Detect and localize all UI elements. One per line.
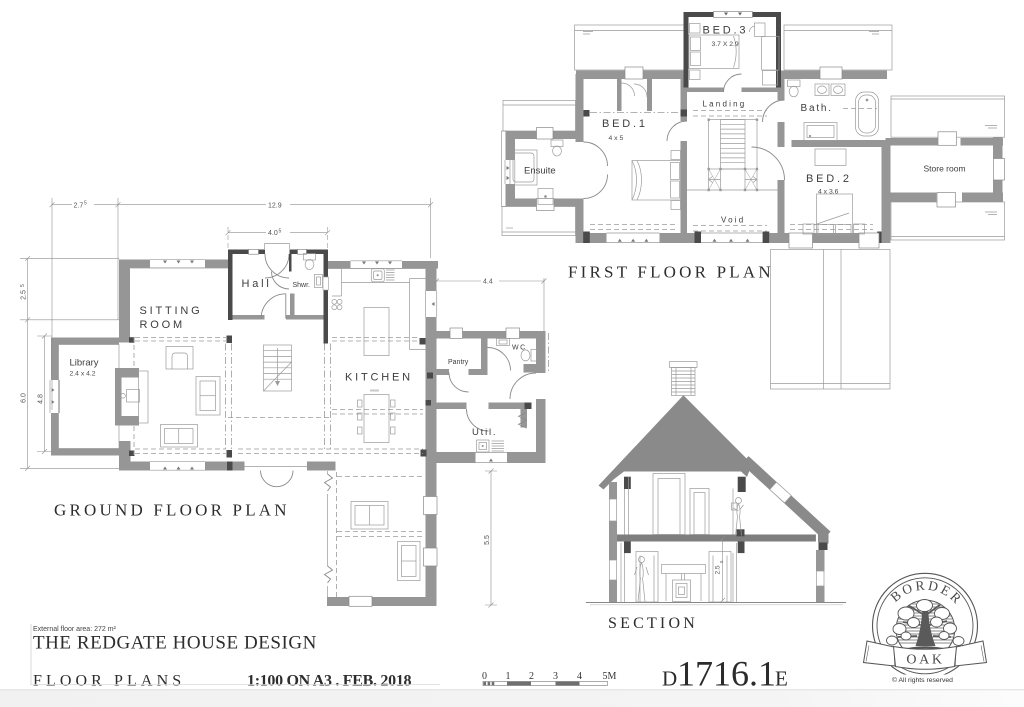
- svg-text:BED.2: BED.2: [806, 173, 852, 185]
- svg-text:GROUND FLOOR PLAN: GROUND FLOOR PLAN: [54, 501, 290, 520]
- svg-text:12.9: 12.9: [268, 203, 282, 210]
- svg-text:WC: WC: [512, 345, 527, 352]
- svg-text:2.7: 2.7: [74, 202, 84, 209]
- svg-text:4.0: 4.0: [268, 230, 278, 237]
- svg-text:© All rights reserved: © All rights reserved: [892, 676, 953, 684]
- svg-text:3: 3: [553, 671, 558, 682]
- svg-text:Util.: Util.: [472, 427, 497, 438]
- svg-text:ROOM: ROOM: [140, 319, 185, 331]
- svg-text:SITTING: SITTING: [140, 305, 203, 317]
- svg-text:Ensuite: Ensuite: [524, 166, 556, 177]
- svg-text:5: 5: [279, 229, 282, 235]
- svg-text:FLOOR PLANS: FLOOR PLANS: [33, 673, 185, 690]
- svg-text:BED.1: BED.1: [602, 118, 648, 130]
- svg-text:1:100 ON A3 . FEB. 2018: 1:100 ON A3 . FEB. 2018: [247, 673, 412, 690]
- svg-text:E: E: [775, 667, 788, 691]
- svg-text:4 x 3.6: 4 x 3.6: [818, 189, 839, 196]
- svg-text:Shwr.: Shwr.: [293, 282, 311, 289]
- svg-text:4.8: 4.8: [38, 394, 45, 404]
- svg-text:FIRST FLOOR PLAN: FIRST FLOOR PLAN: [568, 263, 774, 282]
- svg-text:2.4 x 4.2: 2.4 x 4.2: [70, 371, 96, 378]
- svg-text:BED.3: BED.3: [703, 25, 749, 37]
- svg-text:2.5: 2.5: [715, 565, 722, 574]
- svg-text:SECTION: SECTION: [608, 615, 698, 632]
- svg-text:5: 5: [20, 284, 26, 287]
- svg-text:5M: 5M: [603, 671, 617, 682]
- svg-text:4 x 5: 4 x 5: [609, 135, 624, 142]
- svg-text:Hall: Hall: [242, 278, 272, 290]
- svg-text:Store room: Store room: [924, 164, 966, 174]
- svg-text:1: 1: [506, 671, 511, 682]
- svg-text:0: 0: [482, 671, 487, 682]
- svg-text:5: 5: [84, 201, 87, 207]
- svg-text:2: 2: [529, 671, 534, 682]
- svg-text:4.4: 4.4: [483, 279, 493, 286]
- svg-text:1716.1: 1716.1: [677, 654, 776, 694]
- svg-text:OAK: OAK: [906, 653, 944, 668]
- svg-text:3.7 X 2.9: 3.7 X 2.9: [712, 41, 739, 48]
- svg-text:Bath.: Bath.: [801, 103, 833, 114]
- svg-text:5.5: 5.5: [484, 535, 491, 545]
- svg-text:2.5: 2.5: [21, 290, 28, 300]
- svg-text:Landing: Landing: [703, 100, 747, 109]
- svg-text:THE REDGATE HOUSE DESIGN: THE REDGATE HOUSE DESIGN: [33, 633, 317, 654]
- svg-text:Pantry: Pantry: [448, 359, 469, 366]
- svg-text:D: D: [662, 667, 677, 691]
- svg-text:6.0: 6.0: [21, 393, 28, 403]
- svg-text:Void: Void: [721, 216, 745, 225]
- svg-text:Library: Library: [70, 358, 99, 369]
- svg-text:KITCHEN: KITCHEN: [345, 372, 413, 384]
- svg-text:4: 4: [577, 671, 582, 682]
